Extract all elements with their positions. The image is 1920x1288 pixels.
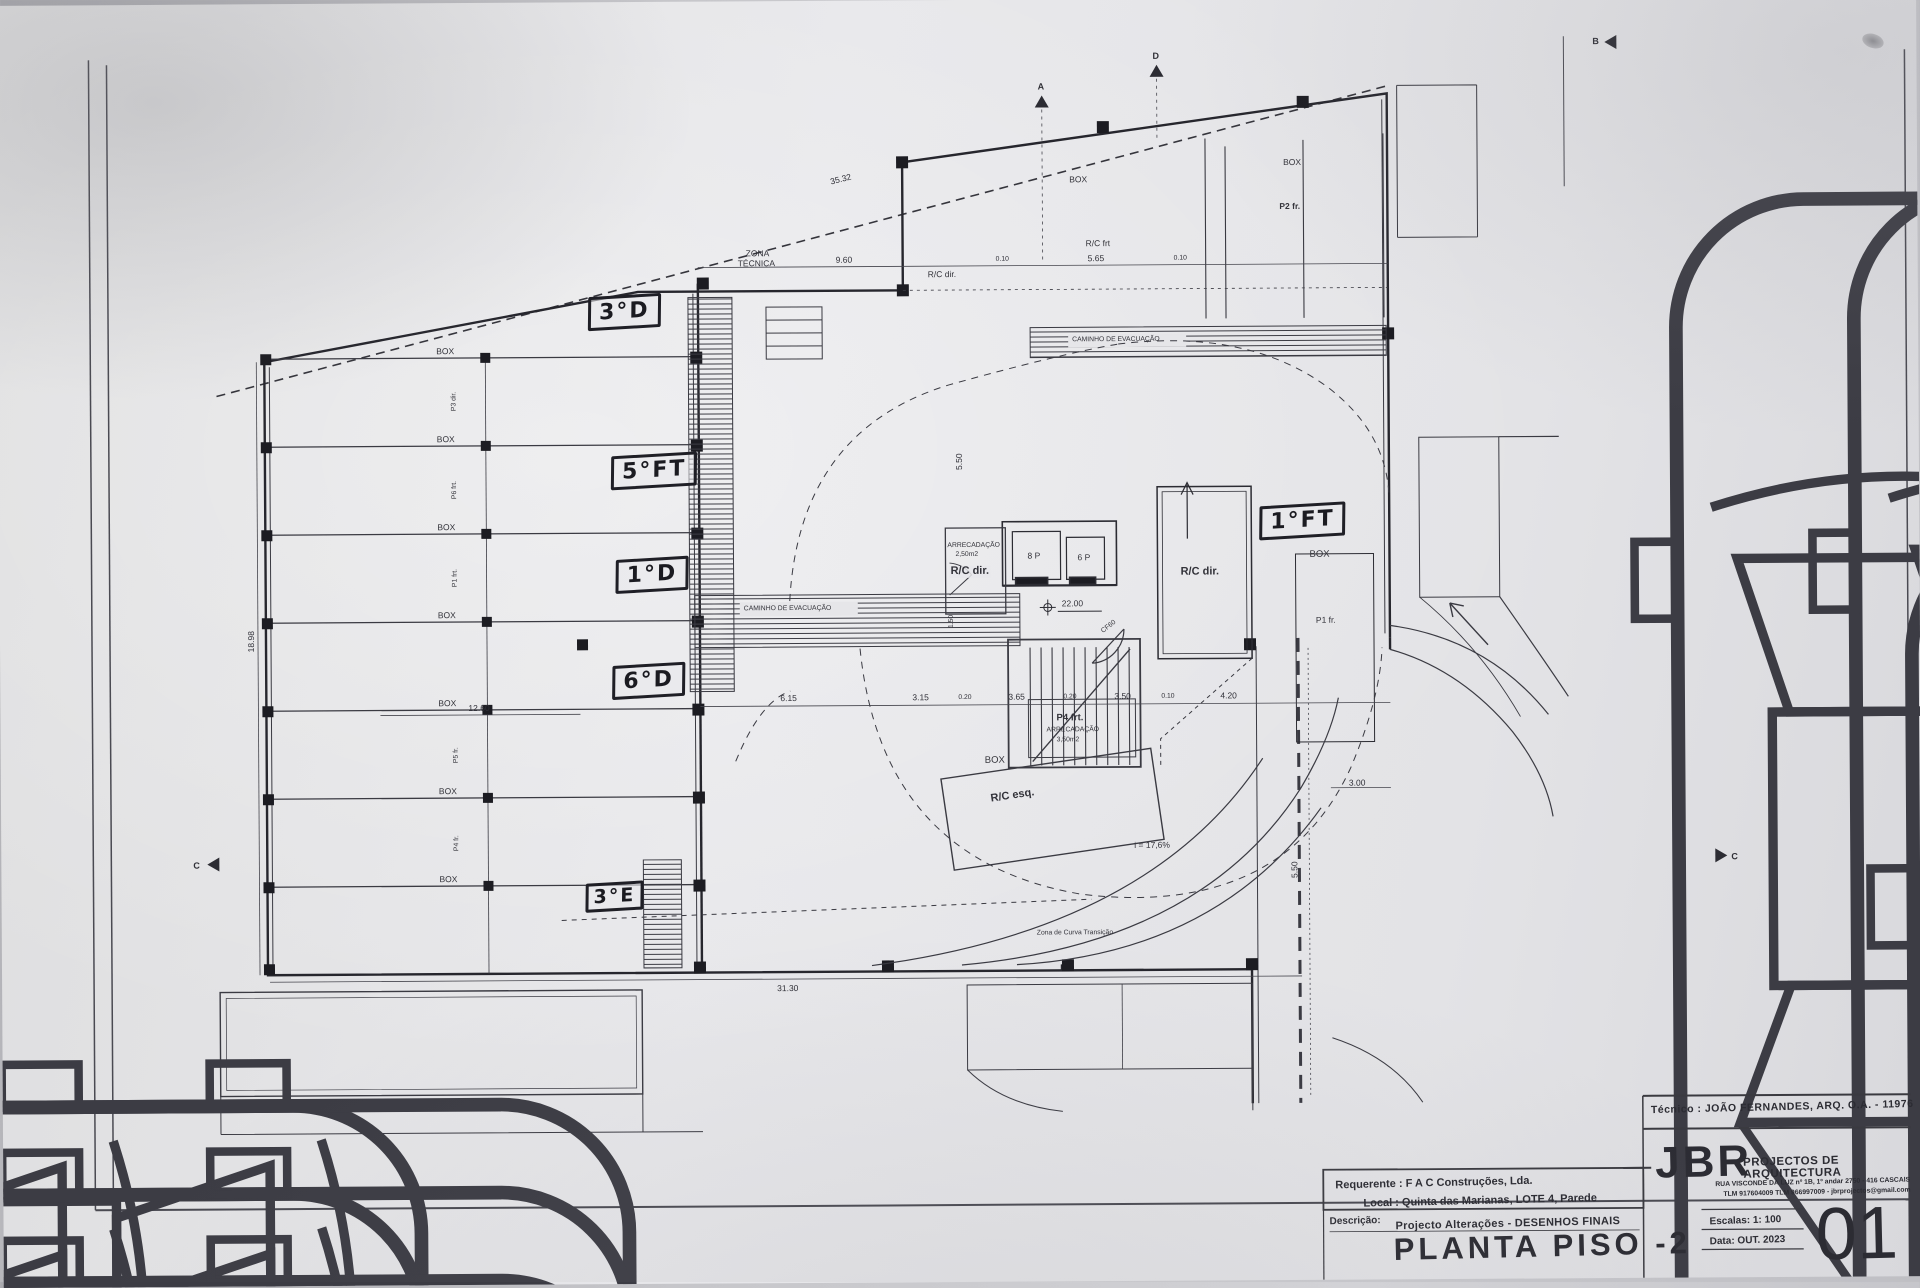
dim-1-50: 1.50 bbox=[948, 615, 955, 628]
stall-tag-p3: P3 dir. bbox=[450, 392, 457, 411]
arrecadacao-label-2: ARRECADAÇÃO bbox=[1047, 726, 1100, 733]
dim-0-20: 0.20 bbox=[958, 694, 971, 701]
drawing-title: PLANTA PISO -2 bbox=[1393, 1225, 1691, 1268]
box-label: BOX bbox=[439, 875, 457, 884]
titleblock-escala: Escalas: 1: 100 bbox=[1709, 1214, 1781, 1227]
dimension-lines bbox=[256, 263, 1393, 1104]
curva-transicao-label: Zona de Curva Transição bbox=[1037, 929, 1113, 937]
section-a-label: A bbox=[1038, 81, 1045, 91]
titleblock-descricao-label: Descrição: bbox=[1329, 1215, 1380, 1227]
sheet-number: 01 bbox=[1815, 1190, 1899, 1277]
handwritten-unit-1ft: 1°FT bbox=[1259, 501, 1346, 540]
door-cf60 bbox=[1092, 629, 1124, 663]
box-label: BOX bbox=[439, 787, 457, 796]
dim-31-30: 31.30 bbox=[777, 983, 798, 993]
caminho-evacuacao-label-2: CAMINHO DE EVACUAÇÃO bbox=[1072, 336, 1160, 344]
elevator-8p-label: 8 P bbox=[1027, 552, 1040, 561]
dim-5-50: 5.50 bbox=[1289, 861, 1299, 878]
box-label: BOX bbox=[1283, 158, 1301, 167]
box-label: BOX bbox=[436, 347, 454, 356]
zona-tecnica-label: ZONA bbox=[746, 249, 770, 258]
rc-frt-label: R/C frt bbox=[1086, 239, 1111, 248]
arrecadacao-label: ARRECADAÇÃO bbox=[947, 542, 1000, 549]
dim-5-65: 5.65 bbox=[1088, 253, 1105, 263]
dim-0-10: 0.10 bbox=[1174, 255, 1187, 262]
floor-plan-drawing bbox=[0, 0, 1920, 1288]
stall-tag-p4: P4 fr. bbox=[453, 835, 460, 851]
handwritten-unit-3d: 3°D bbox=[588, 293, 661, 331]
stair-top-left bbox=[766, 307, 822, 359]
zona-tecnica-label2: TÉCNICA bbox=[738, 259, 775, 268]
elevator-core bbox=[1002, 521, 1116, 586]
dim-3-15: 3.15 bbox=[912, 692, 929, 702]
box-label: BOX bbox=[437, 523, 455, 532]
handwritten-unit-1d: 1°D bbox=[615, 556, 688, 594]
section-b-label: B bbox=[1592, 36, 1599, 46]
box-label: BOX bbox=[985, 756, 1005, 766]
stall-tag-p1: P1 frt. bbox=[452, 569, 459, 587]
top-stall-lines bbox=[902, 133, 1388, 320]
dim-5-50-top: 5.50 bbox=[954, 453, 964, 470]
dim-18-98: 18.98 bbox=[246, 631, 256, 652]
wall-columns bbox=[259, 95, 1398, 976]
rc-dir-stall-label: R/C dir. bbox=[1180, 566, 1221, 578]
handwritten-unit-6d: 6°D bbox=[612, 662, 685, 700]
p4frt-label: P4 frt. bbox=[1056, 713, 1083, 723]
dim-6-15: 6.15 bbox=[780, 693, 797, 703]
section-c-left-label: C bbox=[193, 861, 200, 871]
stall-tag-p5: P5 fr. bbox=[453, 747, 460, 763]
section-d-label: D bbox=[1152, 51, 1159, 61]
photo-of-drawing: 3°D 5°FT 1°D 6°D 3°E 1°FT ZONA TÉCNICA C… bbox=[0, 0, 1920, 1282]
paper-sheet: 3°D 5°FT 1°D 6°D 3°E 1°FT ZONA TÉCNICA C… bbox=[0, 0, 1920, 1288]
dim-3-65: 3.65 bbox=[1008, 692, 1025, 702]
ramp-slope-label: i = 17,6% bbox=[1134, 841, 1170, 850]
rc-dir-storage-label: R/C dir. bbox=[950, 566, 991, 578]
dim-9-60: 9.60 bbox=[836, 255, 853, 265]
dim-3-00: 3.00 bbox=[1349, 778, 1366, 788]
arrecadacao-area-2: 3,50m2 bbox=[1057, 736, 1080, 743]
dim-0-10: 0.10 bbox=[996, 256, 1009, 263]
stall-tag-p1-right: P1 fr. bbox=[1316, 616, 1336, 625]
box-label: BOX bbox=[1069, 175, 1087, 184]
level-value: 22.00 bbox=[1062, 599, 1083, 608]
box-label: BOX bbox=[438, 611, 456, 620]
section-c-right-label: C bbox=[1731, 851, 1738, 861]
stall-tag-p6: P6 frt. bbox=[451, 481, 458, 499]
rc-dir-top-label: R/C dir. bbox=[928, 270, 956, 279]
bottom-left-parking bbox=[220, 990, 703, 1135]
dim-3-50: 3.50 bbox=[1114, 691, 1131, 701]
street-right bbox=[1397, 84, 1569, 697]
dim-12-60: 12.60 bbox=[468, 703, 489, 713]
bottom-right-parking bbox=[967, 982, 1423, 1112]
box-label: BOX bbox=[437, 435, 455, 444]
dim-4-20: 4.20 bbox=[1220, 690, 1237, 700]
box-label: BOX bbox=[438, 699, 456, 708]
stall-tag-p2: P2 fr. bbox=[1279, 202, 1300, 211]
box-label: BOX bbox=[1309, 550, 1329, 560]
dim-0-20: 0.20 bbox=[1063, 693, 1076, 700]
dim-0-10: 0.10 bbox=[1161, 693, 1174, 700]
ramp-curves bbox=[870, 596, 1554, 965]
caminho-evacuacao-label: CAMINHO DE EVACUAÇÃO bbox=[744, 605, 832, 613]
arrecadacao-area: 2,50m2 bbox=[955, 551, 978, 558]
elevator-6p-label: 6 P bbox=[1077, 553, 1090, 562]
hatched-areas bbox=[640, 293, 1390, 968]
handwritten-unit-5ft: 5°FT bbox=[611, 451, 698, 490]
handwritten-unit-3e: 3°E bbox=[585, 880, 643, 912]
